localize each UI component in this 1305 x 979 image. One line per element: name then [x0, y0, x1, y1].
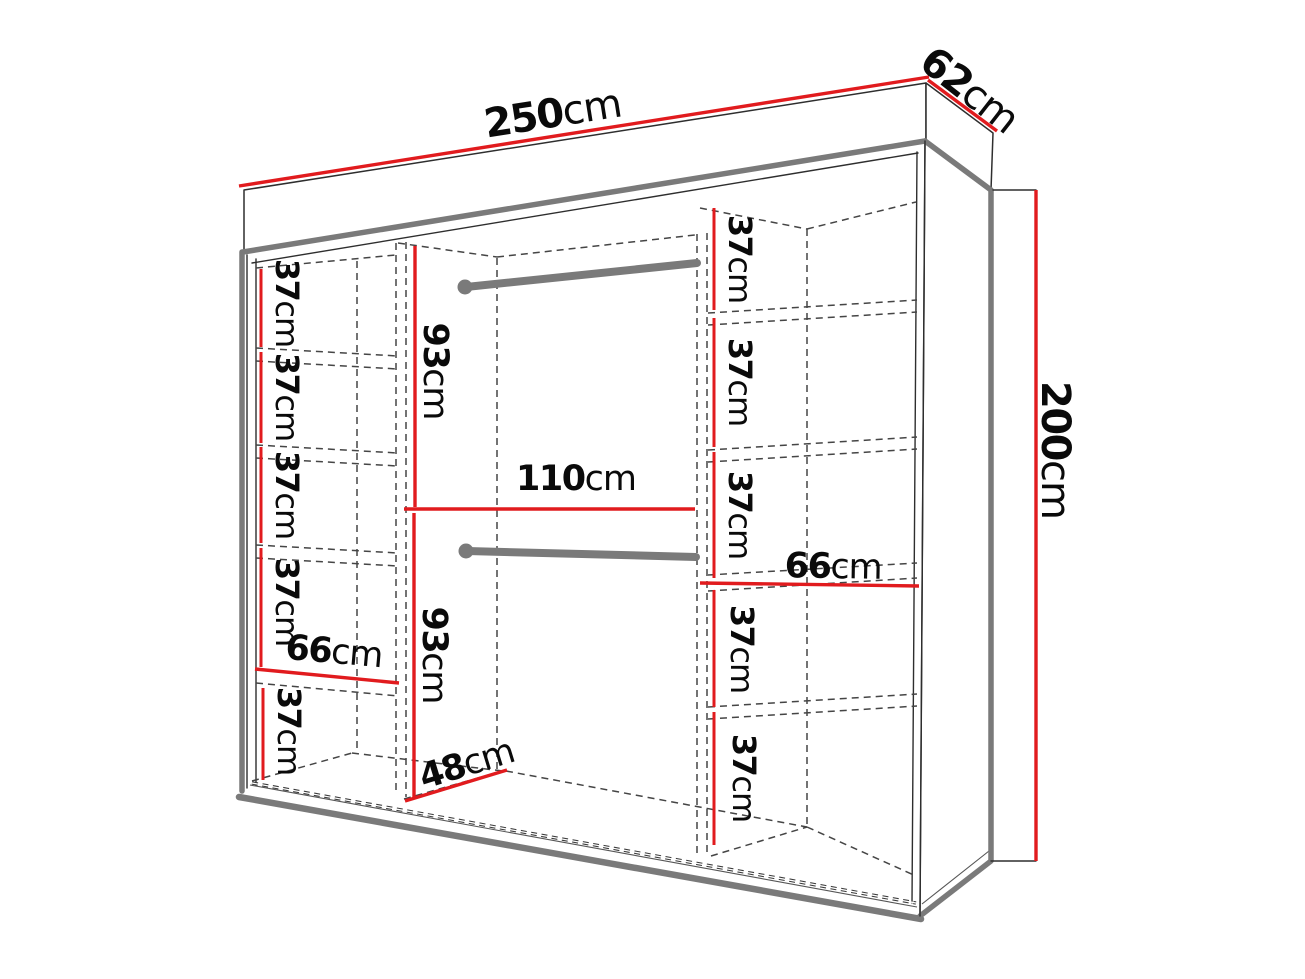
interior-right-wall [912, 152, 917, 903]
rod-top-end-knob [458, 280, 473, 295]
right-shelf-label-2: 37cm [721, 338, 759, 426]
right-shelf-label-4: 37cm [723, 605, 761, 693]
front-frame [239, 141, 925, 919]
left-shelf-label-5: 37cm [270, 687, 308, 775]
floor-stitch-split [252, 783, 916, 903]
wardrobe-dimension-diagram: 250cm 62cm 200cm 110cm 93cm 93cm 48cm 66… [0, 0, 1305, 979]
left-shelf-labels: 37cm 37cm 37cm 37cm 37cm [268, 259, 308, 775]
hidden-lines [252, 202, 917, 876]
floor-depth-right-partition [711, 827, 807, 856]
overall-height-label: 200cm [1032, 381, 1078, 519]
right-shelf-labels: 37cm 37cm 37cm 37cm 37cm [721, 215, 763, 822]
right-shelf-label-5: 37cm [725, 734, 763, 822]
hanging-rod-top [466, 263, 697, 287]
right-column-width-label: 66cm [784, 546, 882, 588]
hanging-top-height-label: 93cm [415, 322, 455, 419]
side-panel-right [920, 141, 991, 916]
ceiling-depth-left-partition [398, 243, 497, 257]
bottom-front-edge [239, 797, 921, 919]
left-shelf-label-4: 37cm [268, 558, 306, 646]
interior-walls [252, 141, 925, 916]
hanging-rod-bottom [467, 551, 696, 557]
left-shelf-label-2: 37cm [268, 353, 306, 441]
ceiling-back-right [807, 202, 916, 229]
right-shelf-label-1: 37cm [721, 215, 759, 303]
hanging-width-label: 110cm [516, 459, 636, 499]
left-shelf-label-3: 37cm [268, 451, 306, 539]
left-shelf-label-1: 37cm [268, 259, 306, 347]
rod-bottom-end-knob [459, 544, 474, 559]
plinth-top-line [250, 785, 917, 907]
hanging-bottom-height-label: 93cm [414, 606, 454, 703]
floor-back-right [807, 827, 916, 876]
diagram-canvas: 250cm 62cm 200cm 110cm 93cm 93cm 48cm 66… [0, 0, 1305, 979]
dim-lines-left-shelves [261, 269, 263, 780]
right-shelf-label-3: 37cm [721, 471, 759, 559]
hanging-rods [458, 263, 698, 559]
interior-depth-label: 48cm [415, 731, 520, 798]
ceiling-back-middle [497, 235, 695, 257]
side-panel-face [920, 141, 991, 916]
